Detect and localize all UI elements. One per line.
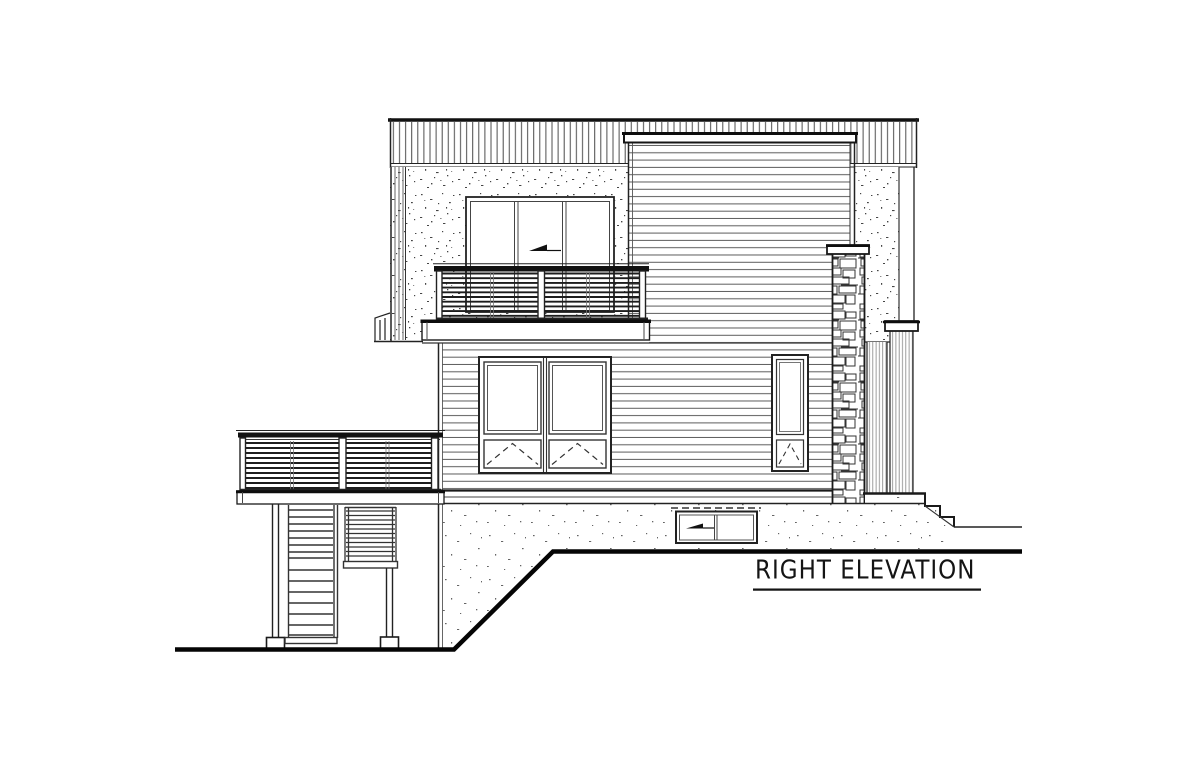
pilaster-cap [883, 321, 920, 331]
drawing-title: RIGHT ELEVATION [753, 556, 981, 591]
roof-cap [622, 133, 858, 143]
drawing-sheet: RIGHT ELEVATION [0, 0, 1200, 768]
elevation-drawing [0, 0, 1200, 768]
main-double-window [479, 357, 611, 473]
basement-window [676, 512, 757, 544]
right-pilasters [867, 321, 920, 493]
narrow-window [772, 355, 808, 471]
deck-top-rail [238, 433, 443, 438]
chimney-cap [826, 245, 870, 254]
balcony-fascia [421, 321, 652, 341]
deck-fascia [236, 491, 445, 504]
